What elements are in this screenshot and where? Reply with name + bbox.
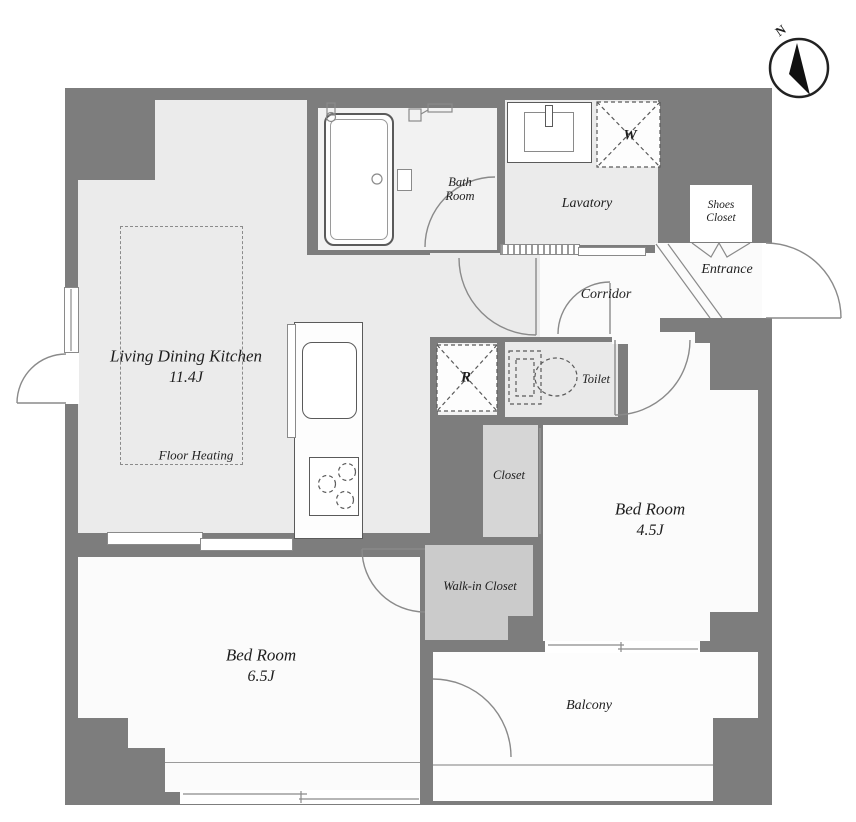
window-ldk-west [64,287,79,353]
sliding-door-panel [578,247,646,256]
sliding-door-panel [200,538,293,551]
kitchen-side-panel [287,324,296,438]
label-toilet: Toilet [582,372,610,386]
entrance-door-opening [762,243,772,318]
label-washer: W [623,128,636,145]
label-shoes-closet: Shoes Closet [706,199,735,225]
label-refrigerator: R [461,370,471,387]
bathtub-inner [330,119,388,240]
room-entrance [655,243,762,318]
window-bedroom-6-5 [180,790,420,804]
label-bedroom-4-5-size: 4.5J [636,522,663,540]
bedroom-6-5-window-bay [163,762,420,792]
bedroom-4-5-doorway [612,332,695,344]
wall-notch [713,718,758,801]
room-bedroom-4-5 [543,425,628,641]
room-ldk-door-swing-area [430,253,540,337]
label-corridor: Corridor [581,287,632,303]
kitchen-sink [302,342,357,419]
wall-notch [710,612,758,641]
stove [309,457,359,516]
label-walk-in-closet: Walk-in Closet [443,579,517,593]
sliding-door-panel [107,532,203,545]
label-bedroom-6-5: Bed Room [226,645,296,664]
label-lavatory: Lavatory [562,196,613,212]
label-bath-room: Bath Room [445,175,474,203]
entrance-door-arc [766,243,841,318]
label-ldk-size: 11.4J [169,369,203,387]
label-ldk: Living Dining Kitchen [110,346,262,365]
label-bedroom-6-5-size: 6.5J [247,668,274,686]
label-entrance: Entrance [701,262,752,278]
lavatory-faucet [545,105,553,127]
ldk-west-door-arc [17,354,66,403]
label-bedroom-4-5: Bed Room [615,499,685,518]
label-floor-heating: Floor Heating [155,449,238,464]
compass-north-icon [770,39,828,97]
lavatory-sliding-door [500,244,580,255]
label-balcony: Balcony [566,698,612,714]
wall-notch [710,343,758,390]
door-opening-ldk-west [64,353,79,404]
bath-shelf [397,169,412,191]
wall-step [66,718,128,805]
floor-plan: Living Dining Kitchen 11.4J Floor Heatin… [0,0,856,822]
label-compass-north: N [773,22,789,39]
window-bedroom-4-5-balcony [545,641,700,653]
wall-notch [508,616,533,640]
label-closet: Closet [493,468,525,482]
wall-step [128,748,165,805]
room-balcony [433,652,758,801]
